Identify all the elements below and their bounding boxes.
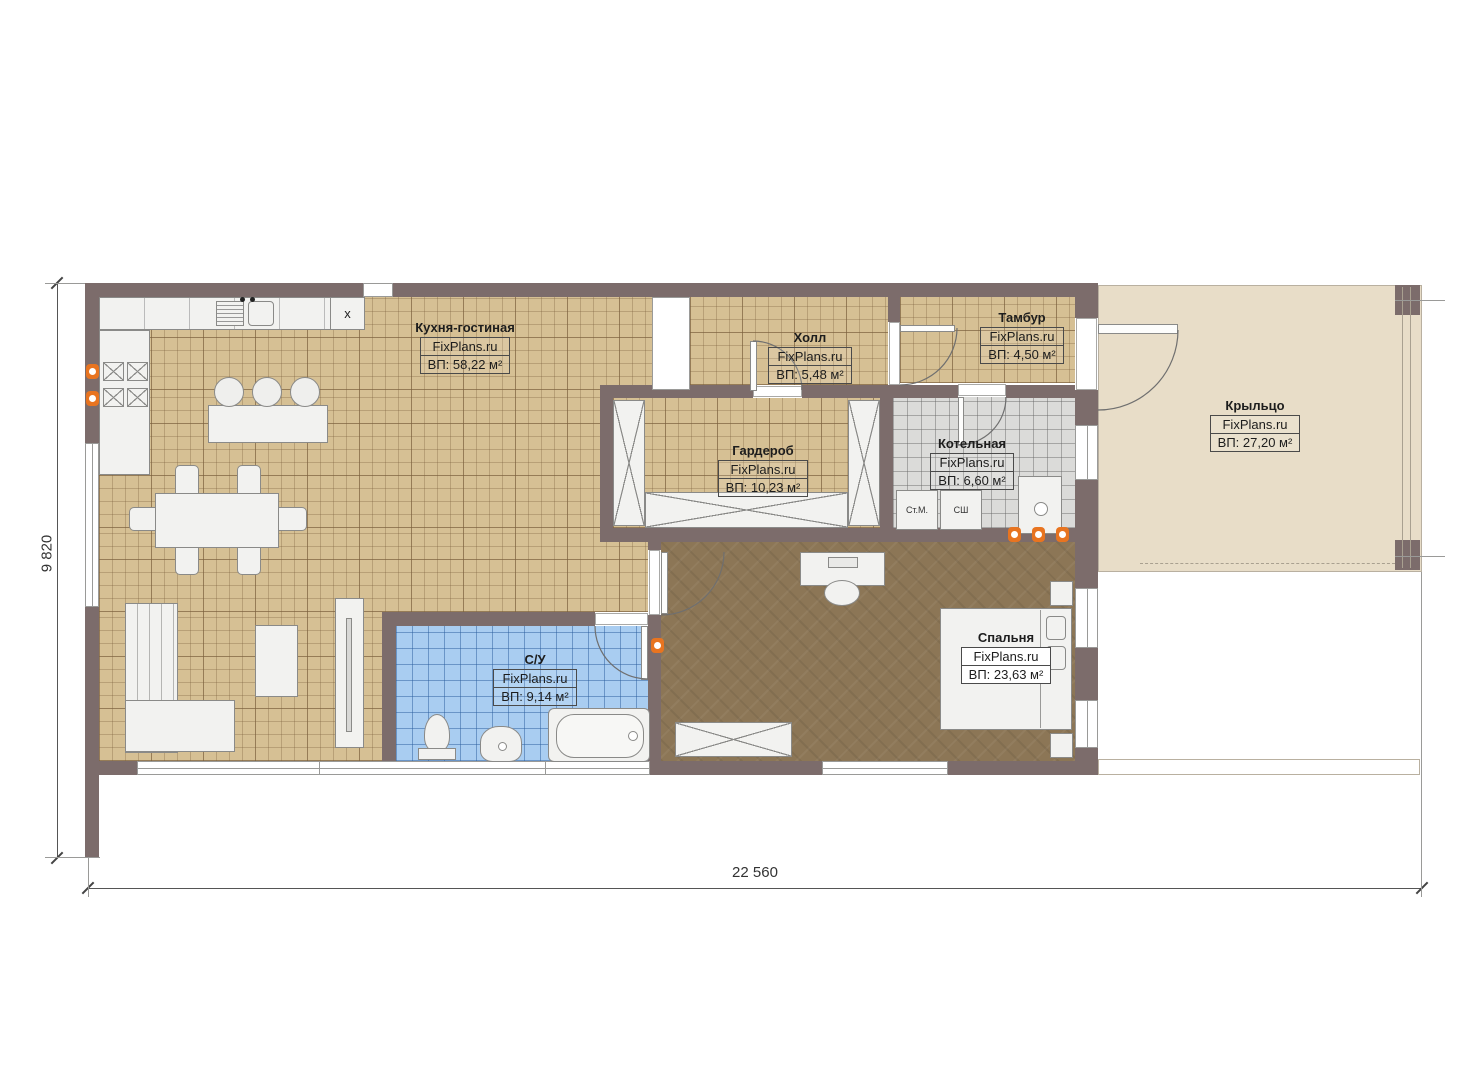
kitchen-tap-icon (240, 297, 245, 302)
doorway-bedroom (649, 550, 660, 615)
dining-chair-right (277, 507, 307, 531)
porch-step-edge (1140, 563, 1395, 564)
wall-bottom-2 (650, 761, 822, 775)
window-right-bedroom-1 (1075, 588, 1098, 648)
porch-pillar-bottom-right (1395, 540, 1420, 570)
wall-hall-tambur (888, 297, 900, 322)
doorway-bathroom (595, 613, 648, 625)
bar-stool-2 (252, 377, 282, 407)
coffee-table (255, 625, 298, 697)
room-label-hall: Холл FixPlans.ru ВП: 5,48 м² (755, 330, 865, 384)
radiator-icon-manifold-1 (1008, 527, 1021, 542)
floor-plan-page: x Ст.М. СШ (0, 0, 1474, 1080)
door-leaf-bathroom (641, 626, 648, 680)
wall-tambur-south-1 (888, 385, 958, 398)
wall-hall-south-2 (802, 385, 888, 398)
wall-bathroom-north (382, 612, 595, 626)
room-label-boiler: Котельная FixPlans.ru ВП: 6,60 м² (914, 436, 1030, 490)
room-area: ВП: 4,50 м² (981, 345, 1062, 363)
wall-right-2 (1075, 390, 1098, 425)
kitchen-appliance-box: x (330, 297, 365, 330)
wall-bathroom-west (382, 612, 396, 761)
room-name: Тамбур (966, 310, 1078, 325)
door-leaf-hall-tambur (900, 325, 955, 332)
wall-right-5 (1075, 748, 1098, 775)
tv-screen (346, 618, 352, 732)
wall-tambur-south-2 (1006, 385, 1075, 398)
room-area: ВП: 9,14 м² (494, 687, 575, 705)
room-brand: FixPlans.ru (719, 461, 808, 478)
room-brand: FixPlans.ru (494, 670, 575, 687)
room-name: Котельная (914, 436, 1030, 451)
doorway-entrance (1076, 318, 1097, 390)
window-bottom-bedroom (822, 761, 948, 775)
wardrobe-cabinet-bottom (645, 492, 848, 528)
stove-burner-1 (103, 362, 124, 381)
bedroom-wardrobe (675, 722, 792, 757)
stove-burner-3 (103, 388, 124, 407)
room-brand: FixPlans.ru (931, 454, 1012, 471)
bathtub-drain (628, 731, 638, 741)
nightstand-1 (1050, 581, 1073, 606)
dim-ext-left-bottom (45, 857, 100, 858)
sofa-horizontal (125, 700, 235, 752)
room-area: ВП: 23,63 м² (962, 665, 1051, 683)
wall-top (85, 283, 1098, 297)
kitchen-tap-icon-2 (250, 297, 255, 302)
window-left (85, 443, 99, 607)
room-brand: FixPlans.ru (962, 648, 1051, 665)
door-leaf-entrance (1098, 324, 1178, 334)
radiator-icon-manifold-2 (1032, 527, 1045, 542)
room-area: ВП: 10,23 м² (719, 478, 808, 496)
porch-edge-line-2 (1410, 287, 1411, 568)
room-name: Кухня-гостиная (398, 320, 532, 335)
doorway-hall-tambur (889, 322, 900, 385)
porch-edge-line-1 (1402, 287, 1403, 568)
kitchen-appliance-label: x (344, 306, 351, 321)
bar-stool-3 (290, 377, 320, 407)
bar-stool-1 (214, 377, 244, 407)
room-brand: FixPlans.ru (421, 338, 510, 355)
stove-burner-2 (127, 362, 148, 381)
wall-left-stub (85, 775, 99, 857)
window-right-bedroom-2 (1075, 700, 1098, 748)
boiler-dial (1034, 502, 1048, 516)
room-area: ВП: 58,22 м² (421, 355, 510, 373)
room-area: ВП: 5,48 м² (769, 365, 850, 383)
room-label-kitchen: Кухня-гостиная FixPlans.ru ВП: 58,22 м² (398, 320, 532, 374)
porch-tick-top (1395, 300, 1445, 301)
wall-bedroom-west-1 (648, 542, 661, 550)
dining-table (155, 493, 279, 548)
room-label-porch: Крыльцо FixPlans.ru ВП: 27,20 м² (1190, 398, 1320, 452)
window-right-boiler (1075, 425, 1098, 480)
room-brand: FixPlans.ru (769, 348, 850, 365)
dim-ext-bottom-left (88, 857, 89, 897)
doorway-hall-wardrobe (753, 386, 802, 397)
dim-ext-left-top (45, 283, 85, 284)
wall-left-lower (85, 607, 99, 775)
bathroom-sink-drain (498, 742, 507, 751)
wall-right-4 (1075, 648, 1098, 700)
room-label-bathroom: С/У FixPlans.ru ВП: 9,14 м² (480, 652, 590, 706)
wall-left-upper (85, 283, 99, 443)
kitchen-sink-bowl (248, 301, 274, 326)
radiator-icon-manifold-3 (1056, 527, 1069, 542)
stove-burner-4 (127, 388, 148, 407)
kitchen-sink-drainer (216, 301, 244, 326)
toilet-bowl (424, 714, 450, 752)
room-label-bedroom: Спальня FixPlans.ru ВП: 23,63 м² (948, 630, 1064, 684)
room-area: ВП: 6,60 м² (931, 471, 1012, 489)
radiator-icon-kitchen-1 (86, 364, 99, 379)
wardrobe-cabinet-left (613, 400, 645, 526)
kitchen-island (208, 405, 328, 443)
wall-right-3 (1075, 480, 1098, 588)
dim-ext-bottom-right (1421, 572, 1422, 897)
doorway-boiler (958, 384, 1006, 396)
room-name: Холл (755, 330, 865, 345)
wall-bedroom-north (600, 528, 1075, 542)
desk-chair (824, 580, 860, 606)
room-brand: FixPlans.ru (1211, 416, 1300, 433)
drying-cabinet-label: СШ (940, 506, 982, 515)
wardrobe-cabinet-right (848, 400, 880, 526)
door-leaf-bedroom (661, 552, 668, 614)
room-name: Спальня (948, 630, 1064, 645)
dimension-line-left (57, 283, 58, 858)
nightstand-2 (1050, 733, 1073, 758)
room-name: Гардероб (702, 443, 824, 458)
room-name: С/У (480, 652, 590, 667)
dimension-width-label: 22 560 (695, 864, 815, 881)
opening-kitchen-hall (652, 297, 690, 390)
terrace-strip (1098, 759, 1420, 775)
room-brand: FixPlans.ru (981, 328, 1062, 345)
radiator-icon-bathroom (651, 638, 664, 653)
dimension-line-bottom (88, 888, 1422, 889)
room-label-tambur: Тамбур FixPlans.ru ВП: 4,50 м² (966, 310, 1078, 364)
desk-monitor (828, 557, 858, 568)
window-top-small (363, 283, 393, 297)
room-name: Крыльцо (1190, 398, 1320, 413)
wall-wardrobe-boiler (880, 390, 893, 542)
room-area: ВП: 27,20 м² (1211, 433, 1300, 451)
radiator-icon-kitchen-2 (86, 391, 99, 406)
room-label-wardrobe: Гардероб FixPlans.ru ВП: 10,23 м² (702, 443, 824, 497)
window-bottom-living (137, 761, 650, 775)
wall-right-1 (1075, 283, 1098, 318)
porch-tick-bottom (1395, 556, 1445, 557)
washing-machine-label: Ст.М. (896, 506, 938, 515)
dimension-height-label: 9 820 (38, 535, 55, 573)
wall-wardrobe-left (600, 390, 613, 542)
toilet-tank (418, 748, 456, 760)
wall-bottom-1 (85, 761, 137, 775)
